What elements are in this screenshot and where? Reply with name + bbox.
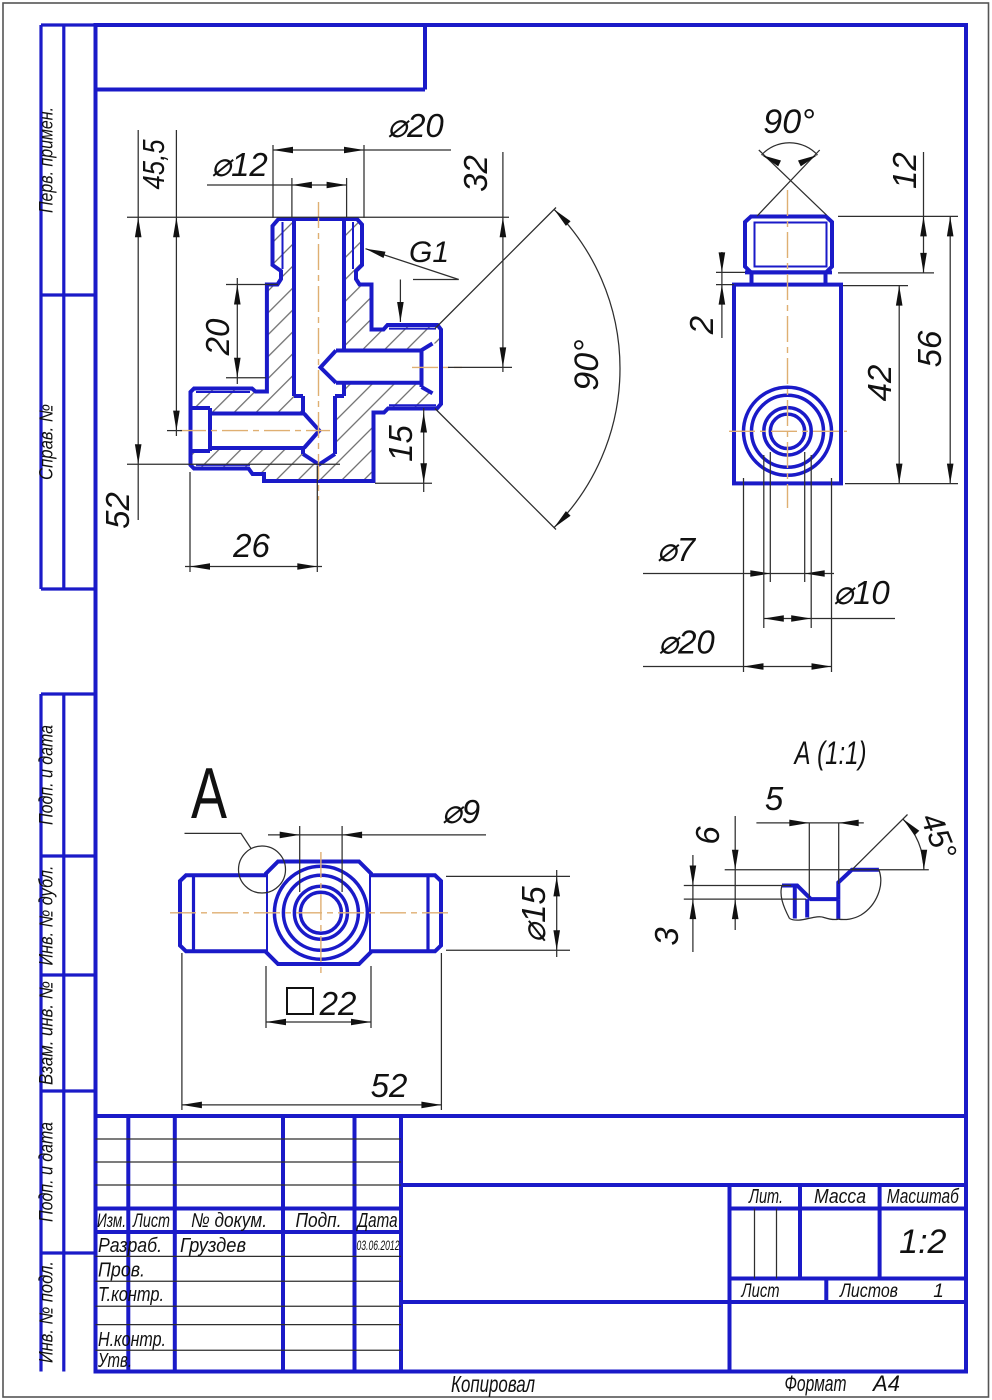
svg-text:⌀20: ⌀20: [658, 624, 715, 661]
svg-text:⌀12: ⌀12: [211, 146, 268, 183]
svg-text:1: 1: [933, 1281, 944, 1302]
svg-text:Груздев: Груздев: [180, 1235, 246, 1257]
svg-text:Изм.: Изм.: [97, 1211, 126, 1232]
svg-text:Подп. и дата: Подп. и дата: [37, 1122, 58, 1222]
svg-text:32: 32: [457, 155, 494, 192]
svg-text:52: 52: [371, 1067, 408, 1104]
svg-text:Разраб.: Разраб.: [98, 1235, 162, 1257]
svg-text:03.06.2012: 03.06.2012: [357, 1238, 400, 1253]
svg-text:Листов: Листов: [838, 1281, 898, 1302]
svg-text:⌀20: ⌀20: [387, 107, 444, 144]
svg-text:Подп.: Подп.: [296, 1210, 342, 1232]
svg-text:Взам. инв. №: Взам. инв. №: [37, 981, 58, 1085]
svg-text:1:2: 1:2: [899, 1223, 946, 1261]
svg-text:Инв. № подл.: Инв. № подл.: [37, 1261, 58, 1363]
svg-text:Т.контр.: Т.контр.: [98, 1284, 164, 1306]
svg-text:Н.контр.: Н.контр.: [98, 1329, 166, 1351]
svg-text:⌀7: ⌀7: [657, 531, 697, 568]
svg-text:15: 15: [382, 425, 419, 462]
svg-text:G1: G1: [409, 236, 449, 269]
svg-text:№ докум.: № докум.: [191, 1210, 267, 1232]
svg-text:Утв.: Утв.: [97, 1350, 132, 1372]
svg-text:Пров.: Пров.: [98, 1260, 145, 1282]
svg-text:Лист: Лист: [131, 1211, 170, 1232]
svg-text:52: 52: [99, 492, 136, 529]
svg-text:26: 26: [232, 527, 270, 564]
svg-text:Дата: Дата: [356, 1210, 398, 1232]
svg-text:⌀10: ⌀10: [833, 574, 890, 611]
svg-text:90°: 90°: [568, 339, 606, 390]
svg-text:45,5: 45,5: [136, 139, 171, 190]
svg-text:Копировал: Копировал: [451, 1371, 535, 1397]
svg-text:22: 22: [319, 985, 357, 1022]
svg-text:2: 2: [683, 316, 720, 335]
svg-text:56: 56: [911, 330, 948, 367]
svg-text:Перв. примен.: Перв. примен.: [37, 107, 58, 213]
svg-text:А4: А4: [871, 1371, 900, 1396]
svg-text:Подп. и дата: Подп. и дата: [37, 725, 58, 825]
svg-text:Справ. №: Справ. №: [37, 404, 58, 480]
svg-text:А (1:1): А (1:1): [793, 735, 866, 771]
svg-text:12: 12: [886, 152, 923, 189]
svg-text:42: 42: [861, 365, 898, 402]
svg-text:6: 6: [689, 826, 726, 845]
svg-text:⌀9: ⌀9: [442, 793, 480, 830]
svg-text:5: 5: [765, 780, 784, 817]
svg-text:Инв. № дубл.: Инв. № дубл.: [37, 866, 58, 966]
svg-text:3: 3: [648, 927, 685, 946]
svg-text:Формат: Формат: [785, 1371, 847, 1396]
svg-text:Лист: Лист: [740, 1281, 780, 1302]
svg-text:Масса: Масса: [814, 1186, 866, 1208]
svg-text:⌀15: ⌀15: [515, 886, 552, 943]
svg-text:А: А: [191, 754, 227, 834]
svg-text:20: 20: [199, 318, 236, 356]
svg-text:Масштаб: Масштаб: [887, 1186, 960, 1208]
svg-text:90°: 90°: [763, 103, 814, 141]
svg-text:Лит.: Лит.: [748, 1186, 783, 1208]
